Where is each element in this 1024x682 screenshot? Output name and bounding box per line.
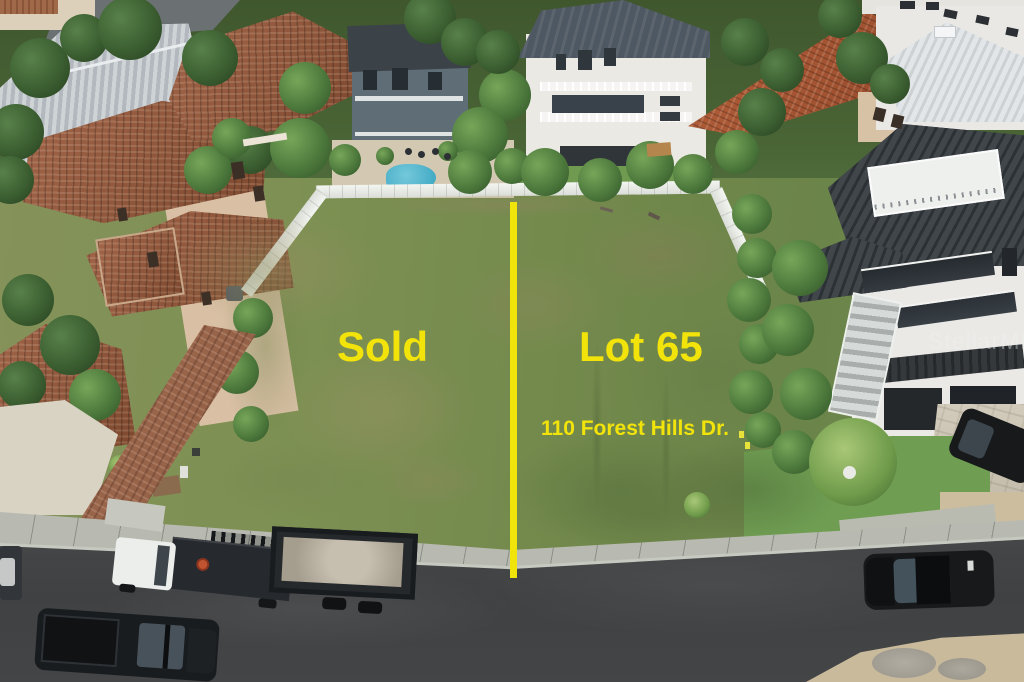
scene-detail: [891, 114, 905, 129]
scene-detail: [405, 148, 412, 155]
palm-tree-canopy: [98, 0, 162, 60]
scene-detail: [1002, 248, 1017, 276]
scene-detail: [432, 148, 439, 155]
scene-detail: [660, 96, 680, 106]
sold-label: Sold: [337, 323, 428, 371]
scene-detail: [578, 50, 592, 70]
gravel-pile-2: [938, 658, 986, 680]
palm-tree-canopy: [521, 148, 569, 196]
palm-tree-canopy: [737, 238, 777, 278]
scene-detail: [1005, 27, 1018, 37]
lot-divider-line: [510, 202, 517, 578]
scene-detail: [604, 48, 616, 66]
palm-tree-canopy: [578, 158, 622, 202]
car-roof: [0, 558, 15, 586]
scene-detail: [363, 70, 377, 90]
scene-detail: [660, 112, 680, 121]
palm-tree-canopy: [233, 406, 269, 442]
suv-rear-chrome: [967, 561, 973, 571]
suv-hood: [865, 557, 895, 606]
gravel-pile: [872, 648, 936, 678]
palm-tree-canopy: [673, 154, 713, 194]
trailer-wheel-2: [358, 601, 383, 614]
truck-wheel: [119, 583, 136, 593]
scene-detail: [739, 431, 744, 438]
scene-detail: [428, 72, 442, 90]
palm-tree-canopy: [329, 144, 361, 176]
palm-tree-canopy: [732, 194, 772, 234]
black-suv-road: [863, 546, 999, 615]
address-label: 110 Forest Hills Dr.: [541, 417, 729, 441]
palm-tree-canopy: [772, 240, 828, 296]
scene-detail: [418, 151, 425, 158]
scene-detail: [926, 2, 939, 10]
scene-detail: [147, 251, 159, 267]
palm-tree-canopy: [809, 418, 897, 506]
scene-detail: [444, 153, 451, 160]
gravel-load: [281, 537, 403, 587]
aerial-photo: Sold Lot 65 110 Forest Hills Dr. Stellar…: [0, 0, 1024, 682]
palm-tree-canopy: [40, 315, 100, 375]
scene-detail: [943, 9, 957, 20]
scene-detail: [253, 185, 265, 201]
suv-roof: [915, 555, 951, 604]
scene-detail: [201, 291, 212, 305]
scene-detail: [975, 15, 989, 26]
scene-detail: [192, 448, 200, 456]
scene-detail: [843, 466, 856, 479]
scene-detail: [117, 207, 128, 221]
pickup-hood: [186, 628, 217, 674]
palm-tree-canopy: [780, 368, 832, 420]
scene-detail: [600, 206, 613, 212]
scene-detail: [648, 212, 661, 221]
palm-tree-canopy: [279, 62, 331, 114]
palm-tree-canopy: [727, 278, 771, 322]
palm-tree-canopy: [182, 30, 238, 86]
palm-tree-canopy: [715, 130, 759, 174]
palm-tree-canopy: [870, 64, 910, 104]
scene-detail: [873, 107, 887, 122]
palm-tree-canopy: [729, 370, 773, 414]
palm-tree-canopy: [0, 104, 44, 160]
black-pickup-truck: [34, 600, 225, 682]
lot-number-label: Lot 65: [579, 323, 703, 371]
palm-tree-canopy: [2, 274, 54, 326]
scene-detail: [745, 442, 750, 449]
mls-watermark: StellarMLS: [928, 328, 1024, 355]
parked-car-partial: [0, 546, 22, 600]
scene-detail: [180, 466, 188, 478]
palm-tree-canopy: [760, 48, 804, 92]
palm-tree-canopy: [0, 361, 46, 409]
palm-tree-canopy: [762, 304, 814, 356]
palm-tree-canopy: [376, 147, 394, 165]
palm-tree-canopy: [0, 156, 34, 204]
scene-detail: [900, 1, 915, 9]
palm-tree-canopy: [270, 118, 330, 178]
trailer-wheel: [322, 597, 347, 610]
palm-tree-canopy: [684, 492, 710, 518]
scene-detail: [556, 54, 566, 70]
palm-tree-canopy: [738, 88, 786, 136]
pickup-bed: [41, 614, 120, 667]
pickup-glass: [137, 623, 186, 670]
scene-detail: [647, 142, 672, 157]
palm-tree-canopy: [476, 30, 520, 74]
scene-detail: [231, 161, 246, 180]
dump-trailer: [264, 522, 422, 620]
scene-detail: [392, 68, 408, 90]
